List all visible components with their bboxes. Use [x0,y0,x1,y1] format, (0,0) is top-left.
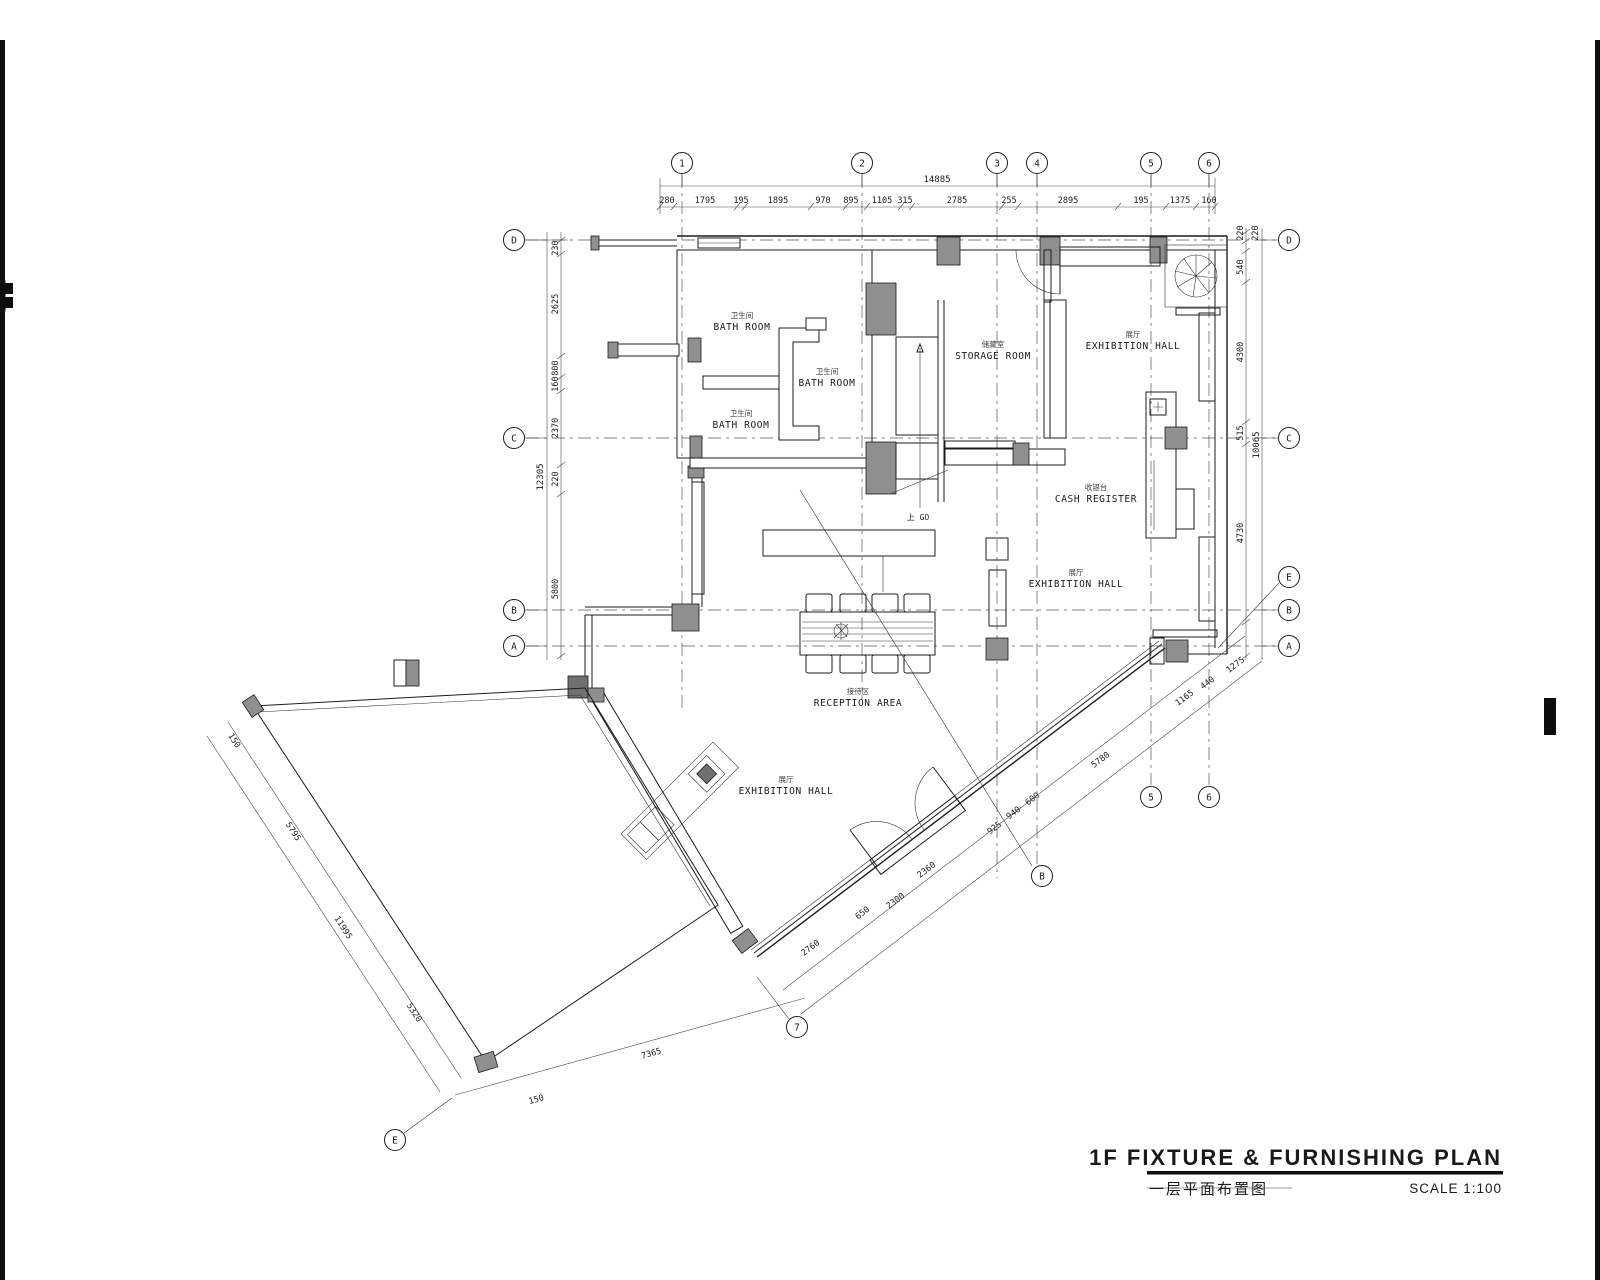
dim-label: 5320 [404,1002,424,1025]
dim-label: 1795 [695,196,715,206]
svg-text:B: B [1286,606,1292,617]
svg-text:卫生间: 卫生间 [730,408,753,418]
grid-bubble-left-A: A [504,636,548,657]
dim-label: 2360 [916,860,938,880]
svg-text:收银台: 收银台 [1085,482,1108,492]
grid-bubble-right-C: C [1262,428,1300,449]
display-shelf [763,530,935,556]
grid-bubble-right-D: D [1262,230,1300,251]
grid-bubble-left-C: C [504,428,548,449]
svg-text:7: 7 [794,1023,800,1034]
svg-text:D: D [511,236,517,247]
svg-text:STORAGE ROOM: STORAGE ROOM [955,351,1031,362]
title-block: 1F FIXTURE & FURNISHING PLAN 一层平面布置图 SCA… [1089,1145,1503,1198]
dim-label: 4300 [1236,342,1246,362]
sheet-title-zh: 一层平面布置图 [1149,1180,1268,1198]
dim-label: 1275 [1225,655,1247,675]
grid-bubble-left-B: B [504,600,548,621]
dim-label: 7365 [640,1046,662,1061]
dim-label: 2785 [947,196,967,206]
dim-label: 10065 [1252,431,1262,458]
grid-bubble-top-1: 1 [672,153,693,187]
dim-label: 160 [551,376,561,391]
storefront-wall [751,641,1165,957]
reception-table [800,612,935,655]
dim-label: 940 [1005,805,1023,822]
dim-label: 5800 [551,579,561,599]
dim-label: 1105 [872,196,892,206]
dim-label: 515 [1236,425,1246,440]
dim-label: 4730 [1236,523,1246,543]
svg-text:C: C [511,434,517,445]
dim-label: 315 [897,196,912,206]
svg-text:5: 5 [1148,159,1154,170]
svg-text:C: C [1286,434,1292,445]
leader-lines [404,490,1279,1133]
dim-label: 1165 [1174,688,1196,708]
dim-chain-right: 10065 220 220 540 4300 515 4730 [1236,225,1262,660]
sheet-scale: SCALE 1:100 [1409,1181,1502,1196]
svg-text:B: B [511,606,517,617]
dim-label: 5780 [1090,750,1112,770]
svg-text:BATH ROOM: BATH ROOM [714,322,771,333]
svg-text:BATH ROOM: BATH ROOM [713,420,770,431]
cash-counter [1146,392,1194,538]
dim-label: 440 [1199,675,1217,692]
grid-bubbles: 1 2 3 4 5 6 D C B A D C E B A 5 6 B 7 E [385,153,1300,1151]
grid-bubble-top-4: 4 [1027,153,1048,187]
sheet-edge-marks [0,40,1600,1280]
room-label-exhibition-bottom: 展厅EXHIBITION HALL [739,775,834,797]
spiral-stair [1165,245,1227,315]
dim-label: 2895 [1058,196,1078,206]
grid-bubble-right-A: A [1262,636,1300,657]
dim-label: 2625 [551,294,561,314]
grid-bubble-bottom-5: 5 [1141,787,1162,808]
dim-chain-left: 12305 230 2625 800 160 2370 220 5800 [536,232,568,660]
svg-text:6: 6 [1206,159,1212,170]
svg-text:3: 3 [994,159,1000,170]
grid-bubble-bottom-B: B [1032,866,1053,887]
room-label-reception: 接待区RECEPTION AREA [814,686,902,709]
svg-text:RECEPTION AREA: RECEPTION AREA [814,698,902,709]
svg-text:卫生间: 卫生间 [731,310,754,320]
grid-bubble-left-D: D [504,230,548,251]
svg-text:E: E [392,1136,398,1147]
svg-text:EXHIBITION HALL: EXHIBITION HALL [739,786,834,797]
grid-bubble-top-3: 3 [987,153,1008,187]
svg-text:储藏室: 储藏室 [982,339,1005,349]
dim-label: 1895 [768,196,788,206]
svg-text:6: 6 [1206,793,1212,804]
dim-label: 150 [225,732,242,750]
svg-text:A: A [1286,642,1292,653]
svg-text:卫生间: 卫生间 [816,366,839,376]
dim-label: 195 [1133,196,1148,206]
grid-bubble-top-6: 6 [1199,153,1220,187]
svg-text:4: 4 [1034,159,1040,170]
svg-text:2: 2 [859,159,865,170]
dim-label: 220 [1251,225,1261,240]
dim-label: 195 [733,196,748,206]
svg-text:展厅: 展厅 [1126,330,1142,339]
dim-label: 2370 [551,418,561,438]
dim-label: 1375 [1170,196,1190,206]
grid-bubble-bottom-E: E [385,1130,406,1151]
dim-label: 925 [986,820,1004,837]
grid-bubble-bottom-6: 6 [1199,787,1220,808]
dim-label: 895 [843,196,858,206]
sheet-title: 1F FIXTURE & FURNISHING PLAN [1089,1145,1502,1170]
dim-label: 540 [1236,259,1246,274]
svg-text:EXHIBITION HALL: EXHIBITION HALL [1029,579,1124,590]
dim-label: 280 [659,196,674,206]
dim-label: 970 [815,196,830,206]
svg-text:A: A [511,642,517,653]
reception-furniture [763,530,935,673]
dim-chain-top: 14885 280 1795 195 1895 970 895 1105 315… [657,175,1218,214]
svg-text:展厅: 展厅 [779,775,794,784]
dim-label: 5795 [283,821,303,844]
grid-bubble-right-E: E [1279,567,1300,588]
terrace [242,660,718,1073]
dim-label: 12305 [536,463,546,490]
bathroom-block [608,250,872,468]
room-label-bathroom-3: 卫生间BATH ROOM [713,408,770,431]
stair-direction-note: 上 GO [907,513,930,522]
dim-label: 255 [1001,196,1016,206]
svg-text:1: 1 [679,159,685,170]
display-cases-right-upper [1199,313,1215,401]
svg-text:E: E [1286,573,1292,584]
room-label-cash-register: 收银台CASH REGISTER [1055,482,1137,505]
svg-text:5: 5 [1148,793,1154,804]
svg-text:CASH REGISTER: CASH REGISTER [1055,494,1137,505]
display-cases-right-lower [1199,537,1215,621]
room-label-bathroom-1: 卫生间BATH ROOM [714,310,771,333]
svg-text:B: B [1039,872,1045,883]
svg-text:展厅: 展厅 [1069,568,1085,577]
room-label-bathroom-2: 卫生间BATH ROOM [799,366,856,389]
grid-bubble-top-2: 2 [852,153,873,187]
table-plant [834,622,848,640]
dim-label: 800 [551,360,561,375]
svg-text:接待区: 接待区 [847,686,870,696]
dim-chains-diagonal: 5780 1165 440 1275 2760 650 2300 2360 92… [207,636,1262,1107]
dim-label: 2300 [885,891,907,911]
dim-label: 220 [551,471,561,486]
dim-label: 650 [854,905,872,922]
dim-label: 2760 [800,938,822,958]
grid-bubble-top-5: 5 [1141,153,1162,187]
room-label-exhibition-mid: 展厅EXHIBITION HALL [1029,568,1124,590]
diagonal-display-wall [588,688,758,953]
svg-text:D: D [1286,236,1292,247]
grid-bubble-right-B: B [1262,600,1300,621]
dim-label: 220 [1236,225,1246,240]
grid-lines [526,175,1277,878]
building-walls [568,236,1227,698]
stairs: 上 GO [866,283,948,522]
svg-text:EXHIBITION HALL: EXHIBITION HALL [1086,341,1181,352]
dim-label: 150 [528,1093,546,1107]
dim-label: 11995 [332,914,354,941]
display-cases-row [945,449,1065,465]
room-label-storage: 储藏室STORAGE ROOM [955,339,1031,362]
floorplan-sheet: 14885 280 1795 195 1895 970 895 1105 315… [0,0,1600,1280]
entry-door-left [850,821,912,866]
dim-label: 14885 [923,175,950,185]
dim-label: 160 [1201,196,1216,206]
dim-label: 230 [551,240,561,255]
svg-text:BATH ROOM: BATH ROOM [799,378,856,389]
display-cases-mid [1050,300,1066,438]
room-label-exhibition-top: 展厅EXHIBITION HALL [1086,330,1181,352]
grid-bubble-bottom-7: 7 [787,1017,808,1038]
